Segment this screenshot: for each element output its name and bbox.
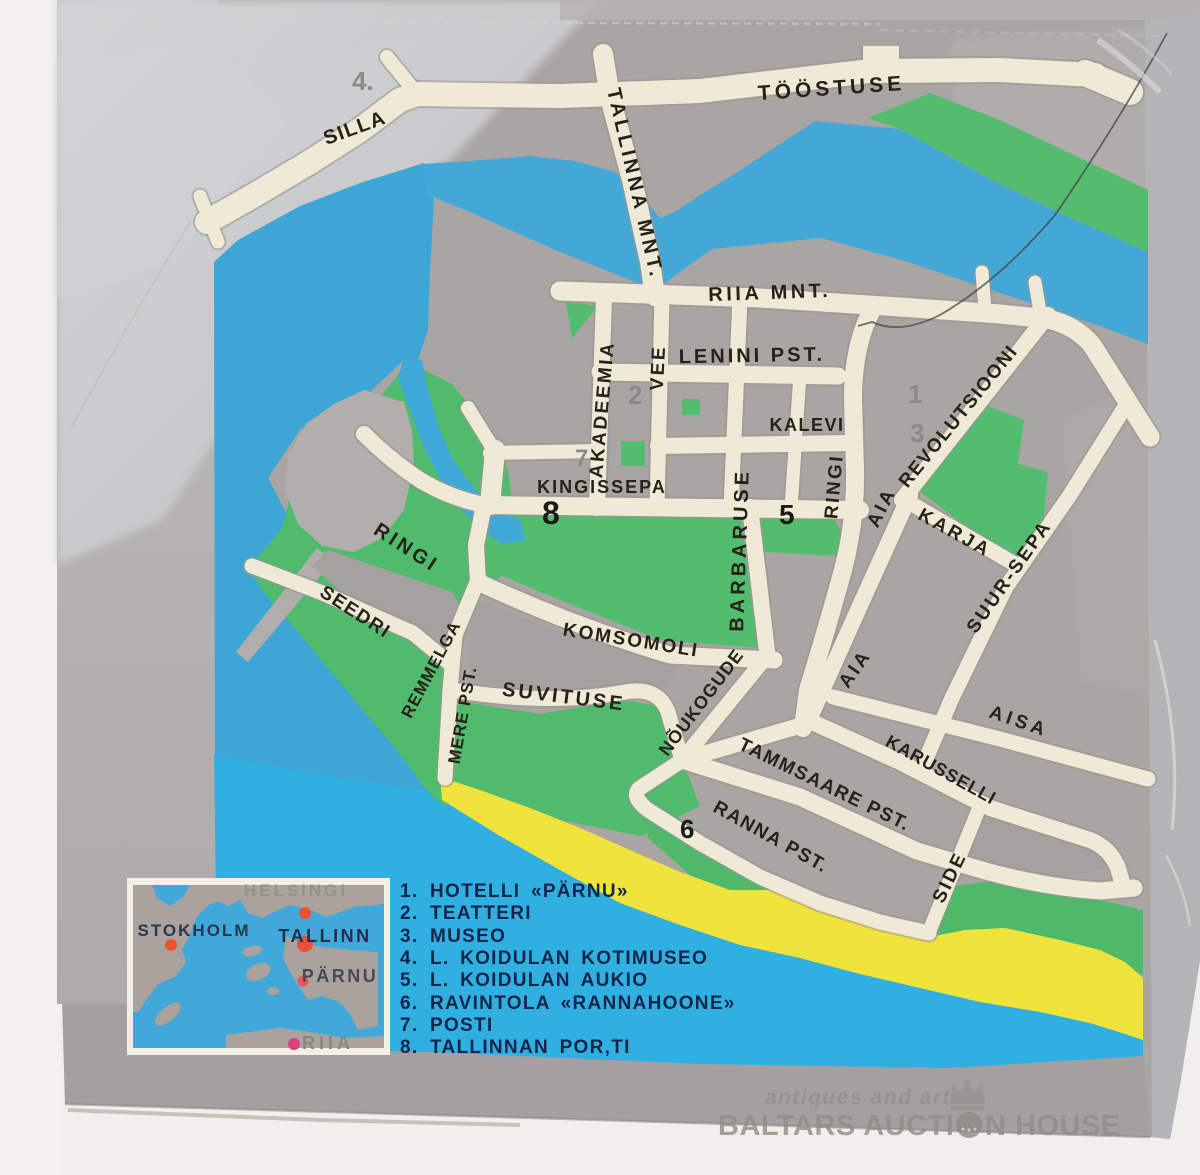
svg-text:L. KOIDULAN AUKIO: L. KOIDULAN AUKIO <box>430 970 648 991</box>
svg-text:PÄRNU: PÄRNU <box>302 966 379 986</box>
svg-text:2: 2 <box>628 380 642 410</box>
svg-text:3: 3 <box>910 418 924 448</box>
svg-text:2.: 2. <box>400 903 418 924</box>
svg-text:STOKHOLM: STOKHOLM <box>138 921 251 940</box>
svg-text:POSTI: POSTI <box>430 1015 494 1036</box>
svg-text:4.: 4. <box>400 948 418 969</box>
svg-text:RIIA: RIIA <box>302 1033 354 1053</box>
svg-text:TEATTERI: TEATTERI <box>430 903 532 924</box>
svg-text:8: 8 <box>542 495 560 531</box>
svg-text:6.: 6. <box>400 993 418 1014</box>
svg-text:7.: 7. <box>400 1015 418 1036</box>
svg-text:3.: 3. <box>400 926 418 947</box>
svg-text:N HOUSE: N HOUSE <box>985 1110 1121 1142</box>
svg-text:HELSINGI: HELSINGI <box>244 881 348 900</box>
svg-text:8.: 8. <box>400 1037 418 1058</box>
svg-text:KALEVI: KALEVI <box>769 415 844 435</box>
svg-text:RAVINTOLA «RANNAHOONE»: RAVINTOLA «RANNAHOONE» <box>430 993 736 1014</box>
svg-text:RIIA MNT.: RIIA MNT. <box>708 280 832 306</box>
svg-text:BALTARS AUCTI: BALTARS AUCTI <box>718 1110 954 1142</box>
svg-text:4.: 4. <box>352 66 374 96</box>
svg-text:LENINI PST.: LENINI PST. <box>679 344 826 369</box>
svg-text:MUSEO: MUSEO <box>430 926 506 947</box>
svg-text:5: 5 <box>779 499 795 530</box>
svg-text:VEE: VEE <box>647 344 670 391</box>
svg-text:HOTELLI «PÄRNU»: HOTELLI «PÄRNU» <box>430 881 629 902</box>
svg-text:1: 1 <box>908 379 922 409</box>
svg-text:7: 7 <box>575 445 588 472</box>
svg-text:L. KOIDULAN KOTIMUSEO: L. KOIDULAN KOTIMUSEO <box>430 948 708 969</box>
svg-text:KINGISSEPA: KINGISSEPA <box>537 477 667 497</box>
svg-text:antiques and art: antiques and art <box>765 1086 951 1109</box>
svg-text:TALLINN: TALLINN <box>278 926 371 946</box>
svg-text:5.: 5. <box>400 970 418 991</box>
svg-text:TALLINNAN POR‚TI: TALLINNAN POR‚TI <box>430 1037 631 1058</box>
svg-text:1.: 1. <box>400 881 418 902</box>
svg-text:6: 6 <box>680 814 694 844</box>
